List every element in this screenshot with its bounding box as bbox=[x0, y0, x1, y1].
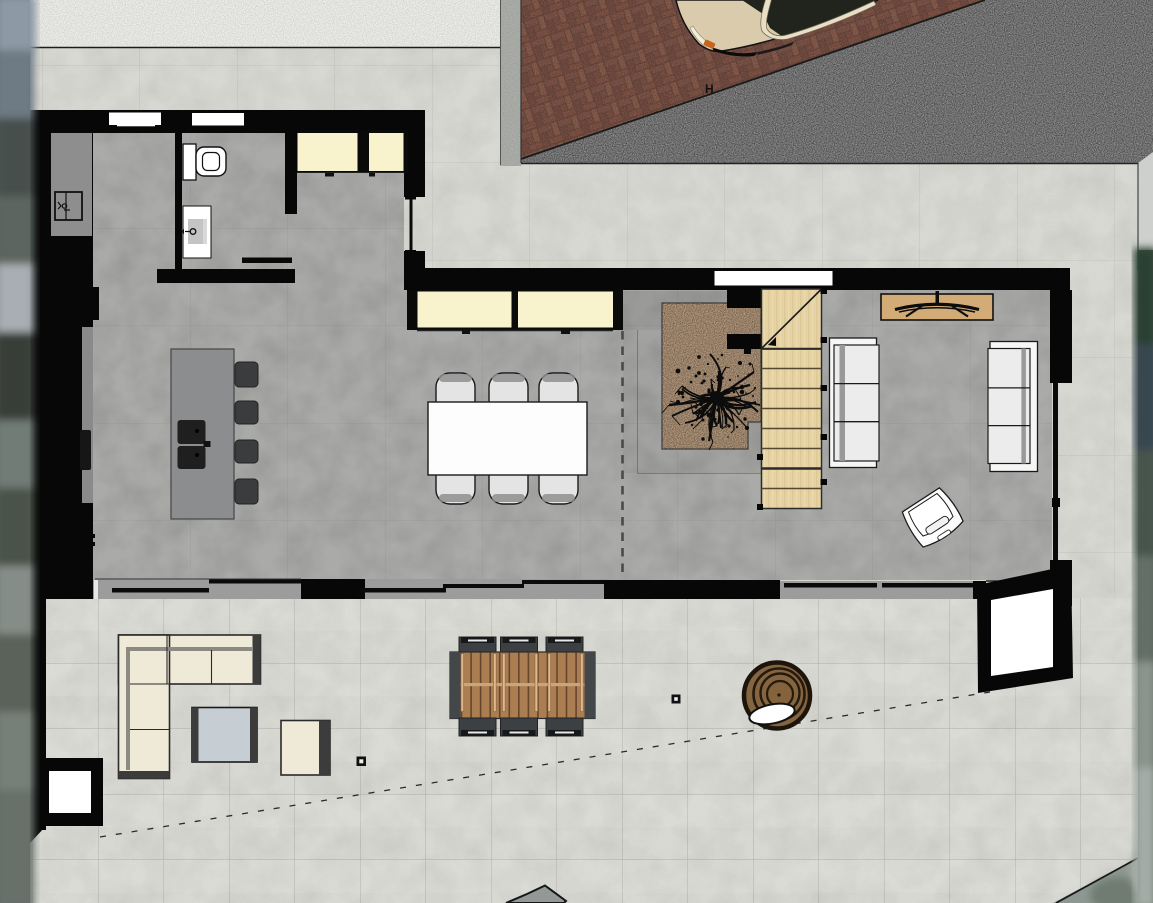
svg-text:H: H bbox=[705, 82, 714, 96]
